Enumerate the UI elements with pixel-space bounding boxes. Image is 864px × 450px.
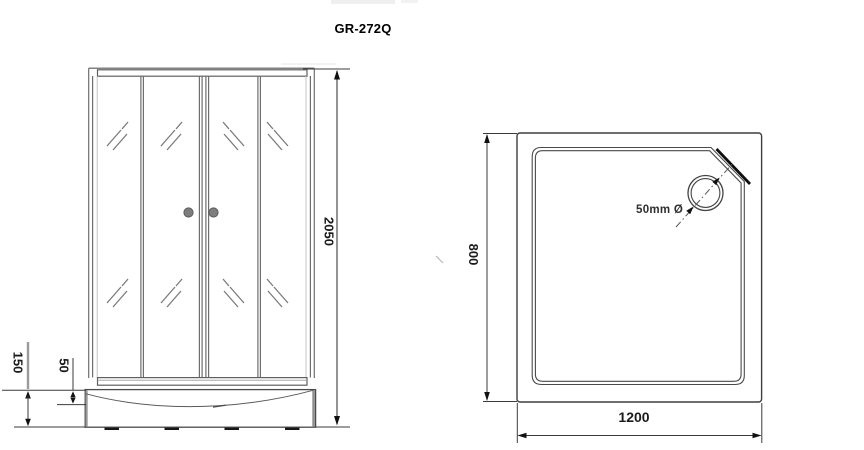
drawing-linework (0, 0, 864, 450)
scan-artifact-tick (436, 256, 443, 263)
door-knobs (184, 208, 218, 217)
technical-drawing-page: GR-272Q 2050 150 50 800 1200 50mm Ø (0, 0, 864, 450)
door-knob-right (209, 208, 218, 217)
tray-inner-rim (532, 148, 744, 385)
tray-feet-marks (105, 428, 300, 430)
drain-centerline (676, 162, 734, 227)
front-view-cabin (85, 68, 315, 430)
dim-label-1200: 1200 (600, 410, 668, 425)
dimension-800 (483, 134, 517, 402)
dim-label-2050: 2050 (322, 214, 337, 250)
drain-diameter-label: 50mm Ø (636, 204, 683, 216)
tray-outer-edge (517, 133, 762, 402)
dim-label-150: 150 (11, 348, 26, 378)
cabin-frame-verticals (89, 69, 315, 379)
shower-tray-front (85, 390, 315, 428)
cabin-top-rail (89, 68, 315, 76)
corner-panel-thick-edge (717, 149, 751, 184)
door-knob-left (184, 208, 193, 217)
top-view-tray (483, 133, 762, 443)
dim-label-800: 800 (466, 241, 481, 268)
model-title: GR-272Q (312, 21, 414, 36)
cabin-bottom-rail (98, 378, 308, 386)
dim-label-50: 50 (57, 355, 72, 377)
